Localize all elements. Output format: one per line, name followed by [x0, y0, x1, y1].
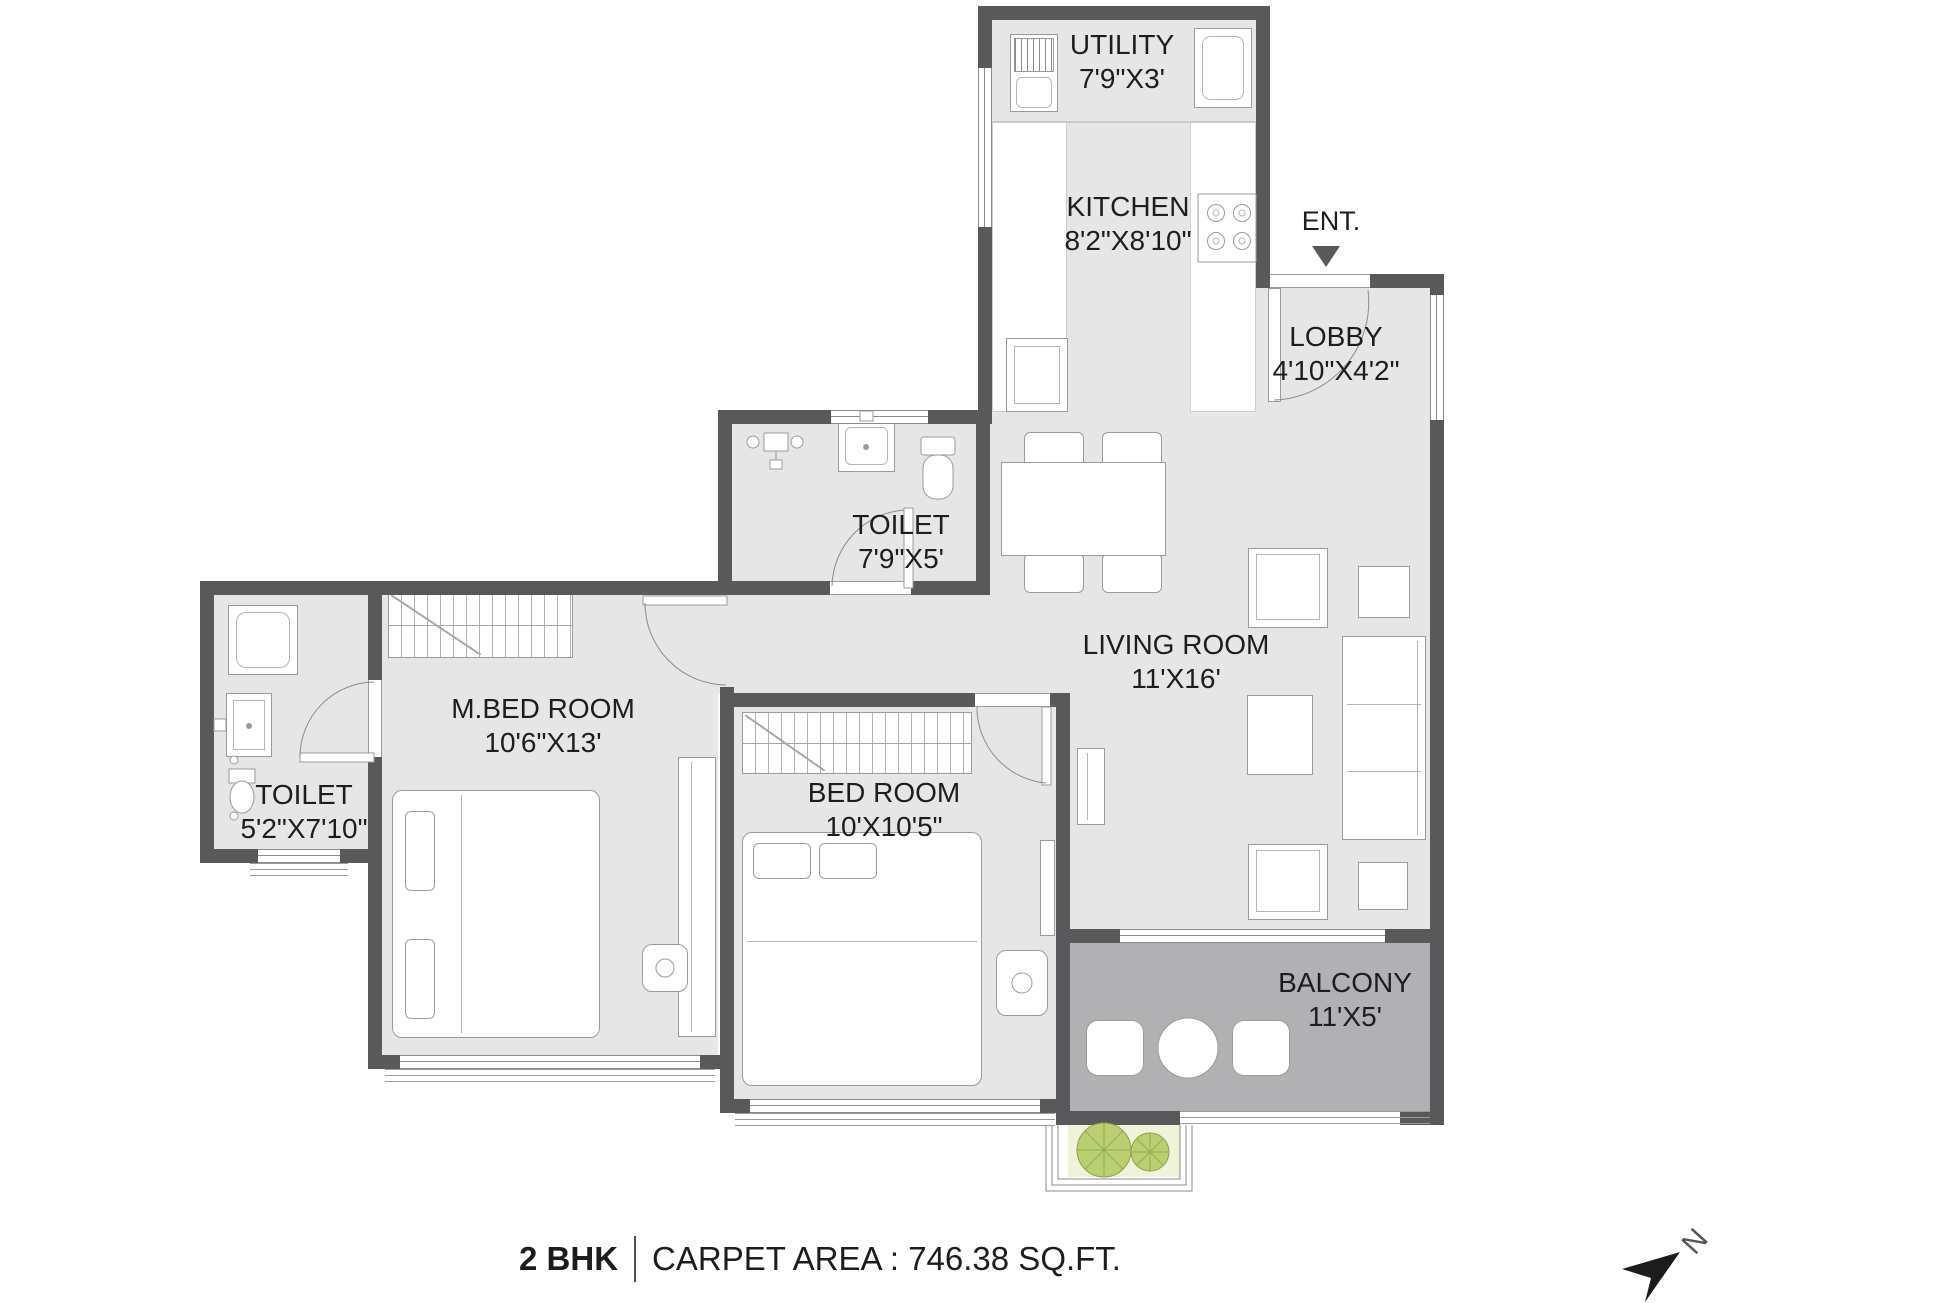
north-arrow-icon: N — [1622, 1223, 1715, 1302]
dining-table — [1001, 462, 1166, 556]
wall — [200, 849, 258, 863]
kitchen-dims: 8'2"X8'10" — [1064, 224, 1191, 258]
side-table — [1358, 566, 1410, 618]
entrance-label: ENT. — [1302, 206, 1361, 237]
wall — [368, 863, 382, 1069]
living-room-label: LIVING ROOM 11'X16' — [1083, 628, 1270, 696]
utility-label: UTILITY 7'9"X3' — [1070, 28, 1174, 96]
study-table — [1040, 840, 1055, 936]
armchair-icon — [1248, 548, 1328, 628]
north-label: N — [1676, 1223, 1715, 1261]
utility-sink-icon — [1194, 28, 1252, 108]
washbasin-icon — [226, 693, 272, 757]
utility-dims: 7'9"X3' — [1070, 62, 1174, 96]
bathtub-icon — [228, 605, 298, 675]
wall — [368, 581, 382, 680]
wall — [911, 581, 990, 595]
living-room-dims: 11'X16' — [1083, 662, 1270, 696]
wall — [718, 410, 732, 595]
title-block: 2 BHK CARPET AREA : 746.38 SQ.FT. — [519, 1236, 1121, 1282]
toilet-common-name: TOILET — [852, 508, 950, 542]
tv-unit-icon — [1077, 748, 1105, 825]
wall — [1056, 693, 1070, 943]
window — [831, 410, 928, 424]
side-table — [1358, 862, 1408, 910]
master-bedroom-name: M.BED ROOM — [451, 692, 635, 726]
window — [750, 1099, 1040, 1113]
wall — [368, 757, 382, 863]
window-sill — [250, 863, 348, 877]
balcony-dims: 11'X5' — [1278, 1000, 1412, 1034]
wall — [727, 693, 975, 707]
sofa-icon — [1342, 636, 1426, 840]
passage-floor — [718, 595, 988, 693]
lobby-dims: 4'10"X4'2" — [1272, 354, 1399, 388]
wall — [1056, 929, 1120, 943]
window — [978, 68, 992, 227]
bhk-label: 2 BHK — [519, 1240, 618, 1278]
window-sill — [385, 1069, 715, 1083]
sliding-window — [1120, 929, 1385, 943]
coffee-table-icon — [1247, 695, 1313, 775]
entrance-arrow-icon — [1312, 246, 1340, 267]
bedroom-label: BED ROOM 10'X10'5" — [808, 776, 960, 844]
wall — [1430, 274, 1444, 295]
wall — [1430, 943, 1444, 1125]
wall — [1256, 6, 1270, 288]
dining-chair — [1024, 553, 1084, 593]
master-bedroom-label: M.BED ROOM 10'6"X13' — [451, 692, 635, 760]
dining-chair — [1102, 553, 1162, 593]
window — [400, 1055, 700, 1069]
bedroom-dims: 10'X10'5" — [808, 810, 960, 844]
wardrobe-icon — [742, 712, 972, 774]
balcony-chair — [1086, 1020, 1144, 1076]
double-bed-icon — [742, 832, 982, 1086]
window — [1430, 295, 1444, 420]
wall — [1430, 420, 1444, 943]
living-room-name: LIVING ROOM — [1083, 628, 1270, 662]
entrance-opening — [1270, 274, 1370, 288]
wall — [1056, 1111, 1180, 1125]
wall — [200, 581, 214, 863]
washing-machine-icon — [1010, 34, 1058, 112]
balcony-label: BALCONY 11'X5' — [1278, 966, 1412, 1034]
bedroom-name: BED ROOM — [808, 776, 960, 810]
washbasin-icon — [838, 420, 895, 472]
balcony-railing — [1180, 1111, 1430, 1125]
toilet-common-dims: 7'9"X5' — [852, 542, 950, 576]
carpet-area-label: CARPET AREA : 746.38 SQ.FT. — [652, 1240, 1121, 1278]
nightstand — [996, 950, 1048, 1016]
kitchen-counter-right — [1190, 122, 1256, 412]
double-bed-icon — [392, 790, 600, 1038]
utility-name: UTILITY — [1070, 28, 1174, 62]
toilet-master-label: TOILET 5'2"X7'10" — [240, 778, 367, 846]
wall — [978, 227, 992, 424]
wall — [978, 6, 1270, 20]
toilet-master-dims: 5'2"X7'10" — [240, 812, 367, 846]
toilet-common-label: TOILET 7'9"X5' — [852, 508, 950, 576]
door-opening — [368, 680, 382, 757]
lobby-name: LOBBY — [1272, 320, 1399, 354]
window — [258, 849, 340, 863]
wall — [720, 687, 734, 1113]
dresser — [678, 757, 716, 1037]
planter-box — [1068, 1125, 1180, 1177]
window-sill — [735, 1113, 1055, 1127]
wardrobe-icon — [388, 592, 573, 658]
nightstand — [642, 944, 688, 992]
wall — [718, 410, 831, 424]
floor-plan: N UTILITY 7'9"X3' KITCHEN 8'2"X8'10" ENT… — [0, 0, 1955, 1303]
wall — [720, 1099, 750, 1113]
wall — [1385, 929, 1430, 943]
toilet-master-name: TOILET — [240, 778, 367, 812]
wall — [1056, 943, 1070, 1125]
caption-divider — [634, 1236, 636, 1282]
door-opening — [830, 581, 911, 595]
wall — [200, 581, 830, 595]
door-opening — [975, 693, 1050, 707]
lobby-label: LOBBY 4'10"X4'2" — [1272, 320, 1399, 388]
kitchen-label: KITCHEN 8'2"X8'10" — [1064, 190, 1191, 258]
master-bedroom-dims: 10'6"X13' — [451, 726, 635, 760]
wall — [978, 6, 992, 68]
kitchen-sink-icon — [1006, 338, 1068, 412]
kitchen-name: KITCHEN — [1064, 190, 1191, 224]
wall — [368, 1055, 400, 1069]
balcony-name: BALCONY — [1278, 966, 1412, 1000]
armchair-icon — [1248, 844, 1328, 920]
wall — [928, 410, 990, 424]
wall — [976, 424, 990, 595]
